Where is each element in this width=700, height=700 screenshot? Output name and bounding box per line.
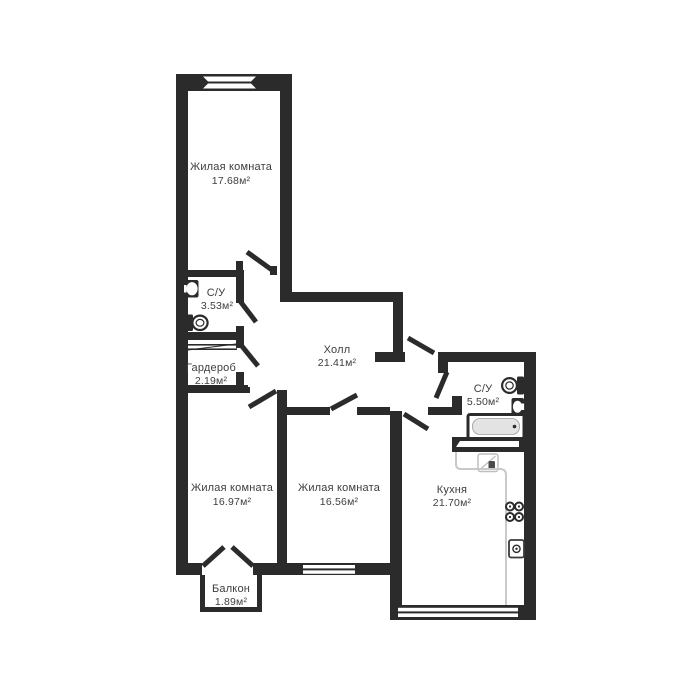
sink-icon bbox=[184, 280, 199, 298]
room-area: 21.41м² bbox=[318, 357, 357, 369]
room-label-kitchen: Кухня 21.70м² bbox=[433, 484, 472, 509]
wall-segment bbox=[236, 261, 243, 270]
room-label-living-left: Жилая комната 16.97м² bbox=[191, 482, 274, 508]
room-area: 2.19м² bbox=[195, 375, 228, 387]
room-labels: Жилая комната 17.68м² С/У 3.53м² Гардеро… bbox=[186, 161, 499, 608]
wall-segment bbox=[287, 407, 330, 415]
wall-segment bbox=[176, 74, 206, 91]
room-label-bathroom-big: С/У 5.50м² bbox=[467, 383, 500, 408]
window-mid-room bbox=[303, 570, 355, 573]
door-wardrobe bbox=[241, 345, 258, 366]
wall-segment bbox=[452, 396, 462, 415]
room-name: С/У bbox=[207, 287, 226, 299]
toilet-icon bbox=[186, 315, 208, 332]
kitchen-sink-icon bbox=[509, 540, 524, 558]
bathtub-icon bbox=[468, 415, 524, 439]
window-top bbox=[203, 84, 256, 89]
wall-segment bbox=[375, 352, 405, 362]
wall-segment bbox=[236, 270, 244, 303]
room-area: 5.50м² bbox=[467, 396, 500, 408]
floor-plan-page: Жилая комната 17.68м² С/У 3.53м² Гардеро… bbox=[0, 0, 700, 700]
room-area: 17.68м² bbox=[212, 175, 251, 187]
wall-segment bbox=[438, 352, 536, 362]
walls bbox=[176, 74, 536, 620]
wall-segment bbox=[277, 390, 287, 575]
room-name: Балкон bbox=[212, 583, 250, 595]
room-name: Холл bbox=[324, 344, 351, 356]
window-mid-room bbox=[303, 565, 355, 568]
door-bathroom-big bbox=[436, 372, 447, 398]
window-top bbox=[203, 77, 256, 82]
duct-slot bbox=[456, 441, 519, 447]
stove-icon bbox=[506, 503, 523, 522]
door-kitchen bbox=[404, 414, 428, 429]
wardrobe-rod bbox=[188, 344, 237, 350]
room-label-living-mid: Жилая комната 16.56м² bbox=[298, 482, 381, 508]
door-bathroom-small bbox=[240, 301, 256, 322]
room-label-bathroom-small: С/У 3.53м² bbox=[201, 287, 234, 312]
room-label-balcony: Балкон 1.89м² bbox=[212, 583, 250, 608]
room-name: Гардероб bbox=[186, 362, 236, 374]
room-name: С/У bbox=[474, 383, 493, 395]
door-living-left bbox=[249, 391, 276, 407]
balcony-door-opening bbox=[202, 563, 253, 575]
wall-segment bbox=[182, 332, 243, 340]
window-kitchen bbox=[398, 613, 518, 617]
room-area: 3.53м² bbox=[201, 300, 234, 312]
balcony-wall bbox=[257, 575, 262, 612]
toilet-icon bbox=[502, 377, 524, 395]
room-label-living-top: Жилая комната 17.68м² bbox=[190, 161, 273, 187]
wall-segment bbox=[390, 605, 536, 620]
wall-segment bbox=[524, 352, 536, 620]
wall-segment bbox=[280, 292, 403, 302]
room-name: Жилая комната bbox=[190, 161, 273, 173]
wall-segment bbox=[390, 411, 402, 620]
wall-segment bbox=[357, 407, 390, 415]
room-name: Жилая комната bbox=[191, 482, 274, 494]
kitchen-counter bbox=[456, 452, 506, 605]
door-entrance bbox=[408, 338, 434, 353]
room-area: 16.56м² bbox=[320, 496, 359, 508]
room-area: 1.89м² bbox=[215, 596, 248, 608]
door-top-room bbox=[247, 252, 272, 270]
wall-segment bbox=[182, 270, 243, 277]
room-area: 16.97м² bbox=[213, 496, 252, 508]
room-name: Кухня bbox=[437, 484, 467, 496]
wall-segment bbox=[280, 74, 292, 302]
room-name: Жилая комната bbox=[298, 482, 381, 494]
sink-icon bbox=[512, 398, 525, 416]
openings bbox=[202, 77, 519, 618]
balcony-wall bbox=[200, 575, 205, 612]
window-kitchen bbox=[398, 608, 518, 612]
room-area: 21.70м² bbox=[433, 497, 472, 509]
floor-plan-canvas: Жилая комната 17.68м² С/У 3.53м² Гардеро… bbox=[0, 0, 700, 700]
room-label-wardrobe: Гардероб 2.19м² bbox=[186, 362, 236, 387]
door-living-mid bbox=[331, 395, 357, 409]
room-label-hall: Холл 21.41м² bbox=[318, 344, 357, 369]
